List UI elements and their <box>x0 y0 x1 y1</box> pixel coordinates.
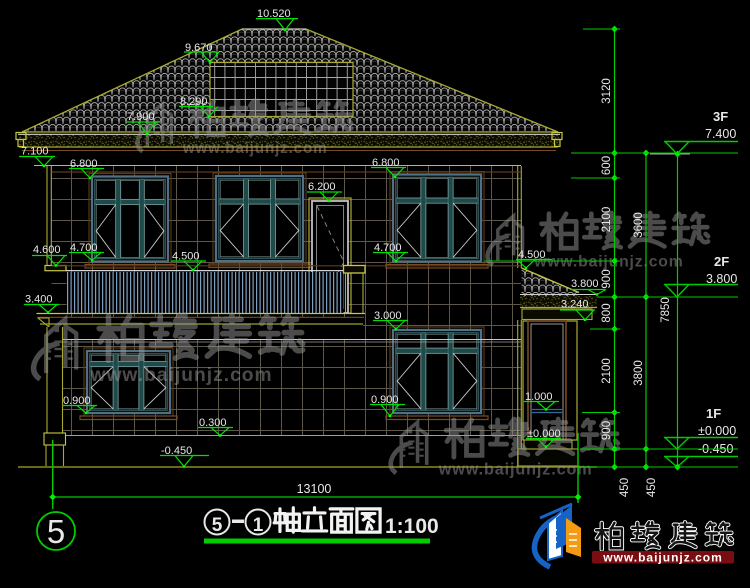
svg-text:450: 450 <box>646 478 658 497</box>
svg-text:13100: 13100 <box>297 482 332 496</box>
svg-text:6.200: 6.200 <box>308 181 336 193</box>
svg-text:3.800: 3.800 <box>571 278 599 290</box>
svg-text:www.baijunjz.com: www.baijunjz.com <box>182 140 328 157</box>
svg-text:±0.000: ±0.000 <box>698 424 736 438</box>
svg-text:3120: 3120 <box>601 78 613 104</box>
svg-text:2100: 2100 <box>601 207 613 233</box>
svg-text:1: 1 <box>253 515 264 536</box>
svg-text:1:100: 1:100 <box>385 515 439 538</box>
svg-text:4.600: 4.600 <box>33 244 61 256</box>
svg-text:5: 5 <box>212 515 223 536</box>
svg-text:www.baijunjz.com: www.baijunjz.com <box>438 460 593 478</box>
svg-text:3.400: 3.400 <box>25 294 53 306</box>
svg-text:3F: 3F <box>713 109 728 124</box>
svg-text:3800: 3800 <box>633 360 645 386</box>
svg-text:www.baijunjz.com: www.baijunjz.com <box>533 254 683 271</box>
svg-text:1F: 1F <box>706 406 721 421</box>
svg-text:5: 5 <box>47 513 65 550</box>
svg-text:900: 900 <box>601 421 613 440</box>
svg-text:www.baijunjz.com: www.baijunjz.com <box>602 551 723 565</box>
svg-text:7850: 7850 <box>660 297 672 323</box>
svg-text:7.900: 7.900 <box>127 111 155 123</box>
svg-text:3.240: 3.240 <box>561 299 589 311</box>
svg-text:600: 600 <box>601 156 613 175</box>
svg-text:2F: 2F <box>714 254 729 269</box>
svg-text:3600: 3600 <box>633 212 645 238</box>
svg-text:7.400: 7.400 <box>705 127 736 141</box>
svg-text:800: 800 <box>601 303 613 322</box>
svg-text:900: 900 <box>601 269 613 288</box>
svg-text:www.baijunjz.com: www.baijunjz.com <box>90 365 273 386</box>
svg-text:7.100: 7.100 <box>21 146 49 158</box>
svg-text:2100: 2100 <box>601 358 613 384</box>
svg-text:450: 450 <box>619 478 631 497</box>
